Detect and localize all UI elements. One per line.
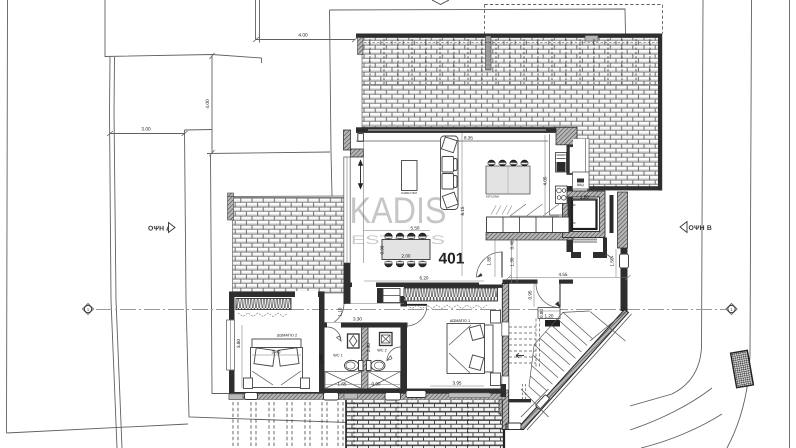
svg-text:8.35: 8.35 [464,136,473,141]
svg-text:6.20: 6.20 [420,276,429,281]
svg-text:2.00: 2.00 [402,254,411,259]
svg-text:0.95: 0.95 [528,290,533,299]
svg-text:4.00: 4.00 [205,99,211,109]
svg-text:WC 1: WC 1 [333,354,343,358]
svg-text:WC 2: WC 2 [377,349,387,353]
svg-text:ΟΨΗ Β: ΟΨΗ Β [689,225,713,232]
svg-text:401: 401 [439,251,465,268]
svg-text:2.40: 2.40 [366,343,371,352]
svg-text:0.80: 0.80 [539,309,544,318]
svg-text:4.05: 4.05 [543,176,548,185]
svg-text:KADIS: KADIS [350,190,447,231]
svg-text:6.15: 6.15 [460,206,465,215]
svg-text:2.60: 2.60 [319,354,324,363]
svg-text:ΔΩΜΑΤΙΟ 2: ΔΩΜΑΤΙΟ 2 [277,334,297,338]
svg-text:BBQ: BBQ [577,183,584,187]
svg-text:1.65: 1.65 [338,382,347,387]
svg-text:3.95: 3.95 [453,381,462,386]
svg-text:1.50: 1.50 [610,257,615,266]
svg-text:3.30: 3.30 [353,317,362,322]
svg-text:4.00: 4.00 [298,33,308,39]
svg-text:3.80: 3.80 [236,339,241,348]
svg-text:0.40: 0.40 [510,240,515,249]
svg-text:1.20: 1.20 [545,314,554,319]
svg-text:0.90: 0.90 [380,245,385,254]
svg-text:ΔΩΜΑΤΙΟ 1: ΔΩΜΑΤΙΟ 1 [450,319,470,323]
svg-text:ΚΑΘΙΣΤΙΚΟ: ΚΑΘΙΣΤΙΚΟ [401,191,418,195]
svg-text:4.55: 4.55 [559,272,568,277]
svg-text:1.30: 1.30 [510,257,515,266]
svg-text:5.50: 5.50 [411,226,420,231]
svg-text:ΚΟΥΖΙΝΑ: ΚΟΥΖΙΝΑ [486,195,499,199]
svg-text:1.80: 1.80 [580,195,589,200]
svg-text:1.10: 1.10 [338,307,343,316]
svg-text:0.90: 0.90 [372,382,381,387]
svg-text:3.00: 3.00 [141,127,151,133]
svg-text:ΟΨΗ Δ: ΟΨΗ Δ [148,226,171,233]
svg-text:1.85: 1.85 [487,256,492,265]
svg-text:3.40: 3.40 [272,350,281,355]
